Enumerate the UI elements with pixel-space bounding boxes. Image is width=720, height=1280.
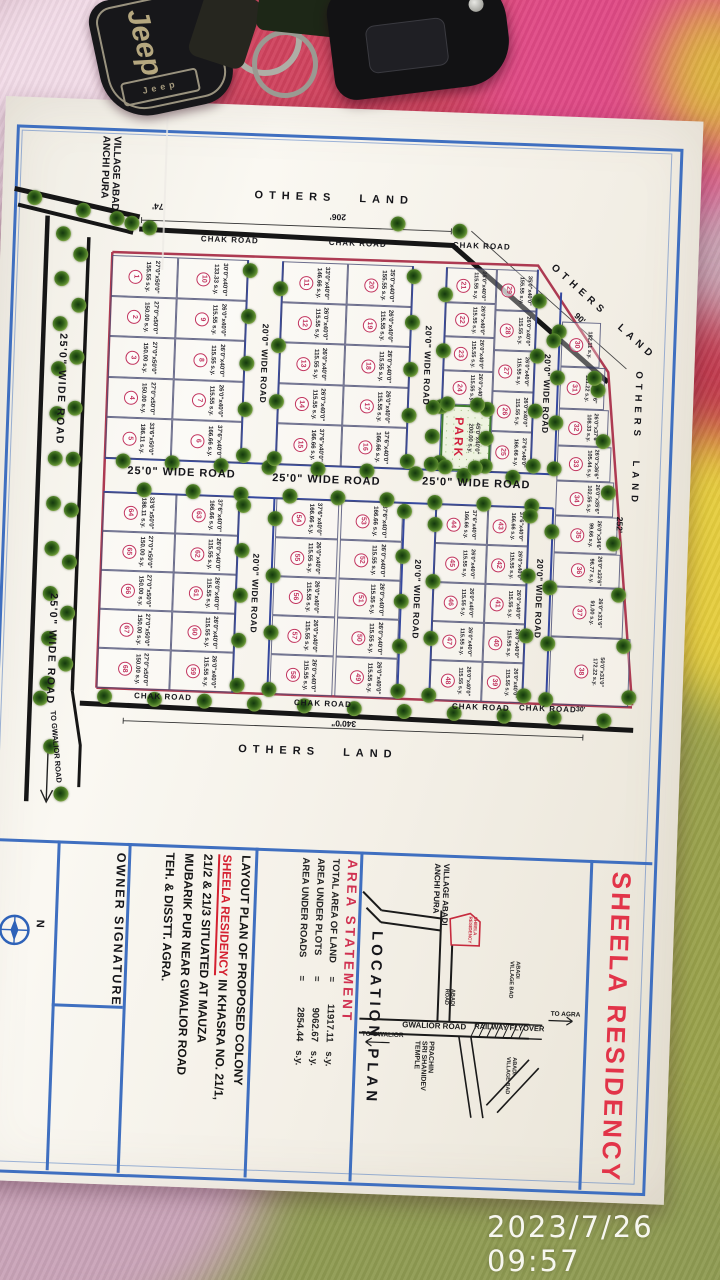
plot-41-text: 26'0"x40'0"115.55 s.y.41 bbox=[484, 584, 526, 624]
dim-74: 74' bbox=[152, 201, 164, 211]
area-statement-cell: AREA STATEMENT TOTAL AREA OF LAND=11917.… bbox=[245, 854, 360, 1187]
tree-icon bbox=[67, 400, 83, 416]
plot-1-text: 27'0"x50'0"155.55 s.y.1 bbox=[111, 255, 178, 298]
plot-11-text: 33'0"x40'0"146.66 s.y.11 bbox=[282, 261, 348, 304]
tree-icon bbox=[185, 484, 201, 500]
park-label: PARK bbox=[451, 417, 466, 459]
layout-description-cell: LAYOUT PLAN OF PROPOSED COLONY SHEELA RE… bbox=[118, 849, 255, 1190]
keys-group: Jeep Jeep bbox=[0, 0, 720, 140]
tree-icon bbox=[401, 407, 417, 423]
plot-65-text: 27'0"x50'0"150.00 s.y.65 bbox=[101, 531, 175, 573]
plot-66-text: 27'0"x50'0"150.00 s.y.66 bbox=[99, 570, 173, 612]
plot-40-text: 26'0"x40'0"115.55 s.y.40 bbox=[483, 623, 525, 663]
plot-45-text: 26'0"x40'0"115.55 s.y.45 bbox=[433, 543, 486, 584]
plot-12-text: 26'0"x40'0"115.55 s.y.12 bbox=[280, 302, 346, 344]
map-to-agra-label: TO AGRA bbox=[551, 1011, 581, 1019]
plot-51-text: 26'0"x40'0"115.55 s.y.51 bbox=[337, 579, 400, 620]
fob-screw bbox=[468, 0, 485, 13]
plot-52-text: 26'0"x40'0"115.55 s.y.52 bbox=[339, 540, 402, 581]
plot-67-text: 27'0"x50'0"150.00 s.y.67 bbox=[98, 609, 172, 651]
plot-8-text: 26'0"x40'0"115.55 s.y.8 bbox=[174, 338, 245, 382]
plot-2-text: 27'0"x50'0"150.00 s.y.2 bbox=[109, 296, 176, 338]
plot-17-text: 26'0"x40'0"115.55 s.y.17 bbox=[342, 386, 408, 428]
location-plan-map bbox=[346, 855, 588, 1193]
tree-icon bbox=[282, 488, 298, 504]
fob-button bbox=[364, 17, 449, 74]
tree-icon bbox=[69, 349, 85, 365]
north-compass-icon bbox=[0, 912, 32, 947]
plot-16-text: 37'6"x40'0"166.66 s.y.16 bbox=[341, 426, 407, 469]
plot-29-text: 35'0"x40'0"155.55 s.y.29 bbox=[495, 269, 537, 311]
plot-9-text: 26'0"x40'0"115.55 s.y.9 bbox=[175, 298, 246, 341]
tree-icon bbox=[271, 338, 287, 354]
dim-206: 206' bbox=[330, 212, 347, 223]
plot-10-text: 30'0"x40'0"133.33 s.y.10 bbox=[177, 257, 248, 301]
layout-desc-highlight: SHEELA RESIDENCY bbox=[214, 854, 234, 976]
tree-icon bbox=[425, 428, 441, 444]
plot-20-text: 35'0"x40'0"155.55 s.y.20 bbox=[347, 264, 413, 307]
plot-5-text: 33'6"x50'0"186.11 s.y.5 bbox=[105, 417, 172, 460]
sheet-title: SHEELA RESIDENCY bbox=[595, 871, 637, 1183]
plot-36-text: 26'0"x33'6"96.77 s.y.36 bbox=[552, 552, 620, 588]
plot-60-text: 26'0"x40'0"115.55 s.y.60 bbox=[171, 611, 235, 652]
plot-57-text: 26'0"x40'0"115.55 s.y.57 bbox=[271, 615, 335, 656]
key-ring-icon bbox=[252, 30, 318, 98]
plot-15-text: 37'6"x40'0"166.66 s.y.15 bbox=[276, 423, 342, 466]
plot-59-text: 26'0"x40'0"115.55 s.y.59 bbox=[169, 650, 233, 692]
plot-19-text: 26'0"x40'0"115.55 s.y.19 bbox=[345, 305, 411, 347]
plot-54-text: 37'6"x40'0"166.66 s.y.54 bbox=[275, 498, 339, 539]
dim-30: 30' bbox=[576, 706, 586, 713]
owner-signature-cell: OWNER SIGNATURE bbox=[54, 846, 129, 1005]
dim-252: 252' bbox=[612, 517, 625, 553]
car-key-fob bbox=[324, 0, 514, 102]
plot-18-text: 26'0"x40'0"115.55 s.y.18 bbox=[344, 345, 410, 388]
map-to-gwalior-label: TO GWALIOR bbox=[362, 1031, 404, 1040]
plot-50-text: 26'0"x40'0"115.55 s.y.50 bbox=[336, 617, 399, 658]
plot-13-text: 26'0"x40'0"115.55 s.y.13 bbox=[279, 342, 345, 385]
tree-icon bbox=[403, 361, 419, 377]
plot-55-text: 26'0"x40'0"115.55 s.y.55 bbox=[274, 537, 338, 578]
plot-3-text: 27'0"x50'0"150.00 s.y.3 bbox=[108, 336, 175, 379]
plot-62-text: 26'0"x40'0"115.55 s.y.62 bbox=[174, 533, 238, 574]
camera-timestamp: 2023/7/26 09:57 bbox=[487, 1210, 720, 1278]
plot-21-text: 26'0"x40'0"115.55 s.y.21 bbox=[446, 267, 497, 304]
plot-46-text: 26'0"x40'0"115.55 s.y.46 bbox=[432, 582, 485, 623]
layout-plan-sheet: OTHERS LAND OTHERS LAND OTHERS LAND OTHE… bbox=[0, 96, 704, 1205]
plot-30-text: 182.11 s.y.30 bbox=[560, 322, 601, 368]
plot-47-text: 26'0"x40'0"115.55 s.y.47 bbox=[431, 621, 484, 662]
park-area-value: 200.00 s.y. bbox=[466, 423, 473, 453]
tree-icon bbox=[396, 703, 412, 719]
tree-icon bbox=[479, 430, 495, 446]
plot-61-text: 26'0"x40'0"115.55 s.y.61 bbox=[172, 572, 236, 613]
plot-56-text: 26'0"x40'0"115.55 s.y.56 bbox=[272, 576, 336, 617]
plot-23-text: 26'0"x40'0"115.55 s.y.23 bbox=[443, 336, 494, 372]
tree-icon bbox=[237, 401, 253, 417]
plot-58-text: 26'0"x40'0"115.55 s.y.58 bbox=[269, 654, 333, 696]
plot-49-text: 26'0"x40'0"115.55 s.y.49 bbox=[334, 656, 397, 698]
tree-icon bbox=[62, 554, 78, 570]
photo-of-layout-plan: OTHERS LAND OTHERS LAND OTHERS LAND OTHE… bbox=[0, 0, 720, 1280]
tree-icon bbox=[476, 496, 492, 512]
tree-icon bbox=[427, 494, 443, 510]
tree-icon bbox=[379, 492, 395, 508]
plot-6-text: 37'6"x40'0"166.66 s.y.6 bbox=[171, 419, 242, 463]
plot-53-text: 37'6"x40'0"166.66 s.y.53 bbox=[340, 501, 403, 542]
plot-22-text: 26'0"x40'0"115.55 s.y.22 bbox=[444, 302, 495, 338]
north-label: N bbox=[31, 920, 46, 946]
plot-4-text: 27'0"x50'0"150.00 s.y.4 bbox=[106, 377, 173, 419]
plot-28-text: 26'0"x40'0"115.55 s.y.28 bbox=[494, 310, 536, 351]
plot-63-text: 37'6"x40'0"166.66 s.y.63 bbox=[175, 495, 239, 536]
plot-33-text: 26'0"x36'6"105.44 s.y.33 bbox=[556, 445, 611, 482]
dim-340: 340'0" bbox=[331, 718, 356, 729]
plot-7-text: 26'0"x40'0"115.55 s.y.7 bbox=[172, 379, 243, 422]
tree-icon bbox=[60, 605, 76, 621]
tree-icon bbox=[239, 355, 255, 371]
plot-14-text: 26'0"x40'0"115.55 s.y.14 bbox=[277, 383, 343, 425]
plot-48-text: 26'0"x40'0"115.55 s.y.48 bbox=[429, 660, 482, 702]
plot-64-text: 33'6"x50'0"186.11 s.y.64 bbox=[102, 492, 176, 534]
plot-68-text: 27'0"x50'0"150.00 s.y.68 bbox=[96, 648, 170, 691]
plot-27-text: 26'0"x40'0"115.55 s.y.27 bbox=[493, 350, 535, 392]
